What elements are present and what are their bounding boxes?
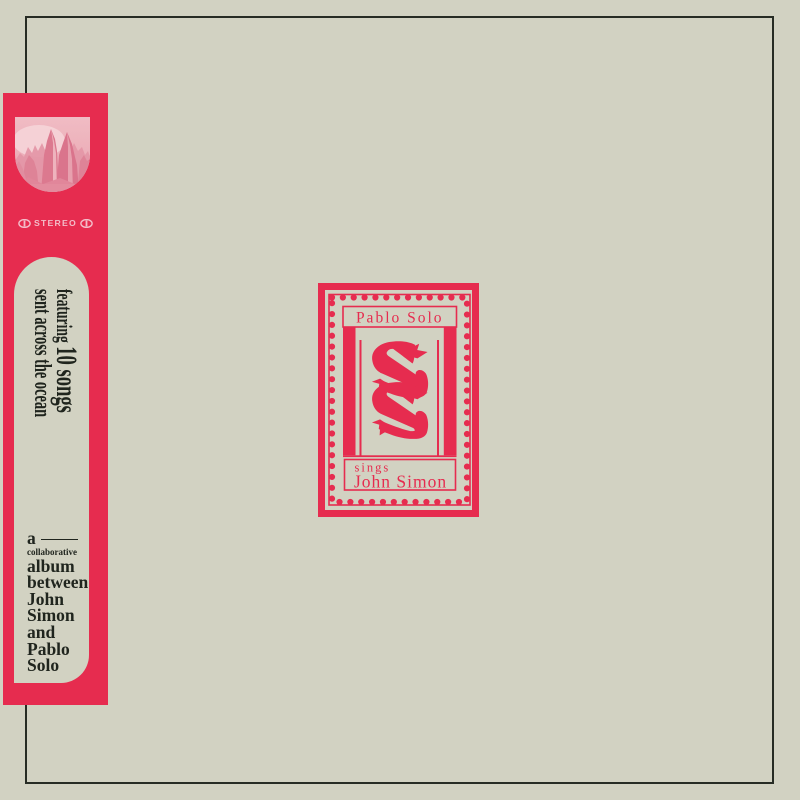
svg-text:John Simon: John Simon (354, 472, 447, 492)
svg-text:Pablo Solo: Pablo Solo (356, 310, 444, 327)
